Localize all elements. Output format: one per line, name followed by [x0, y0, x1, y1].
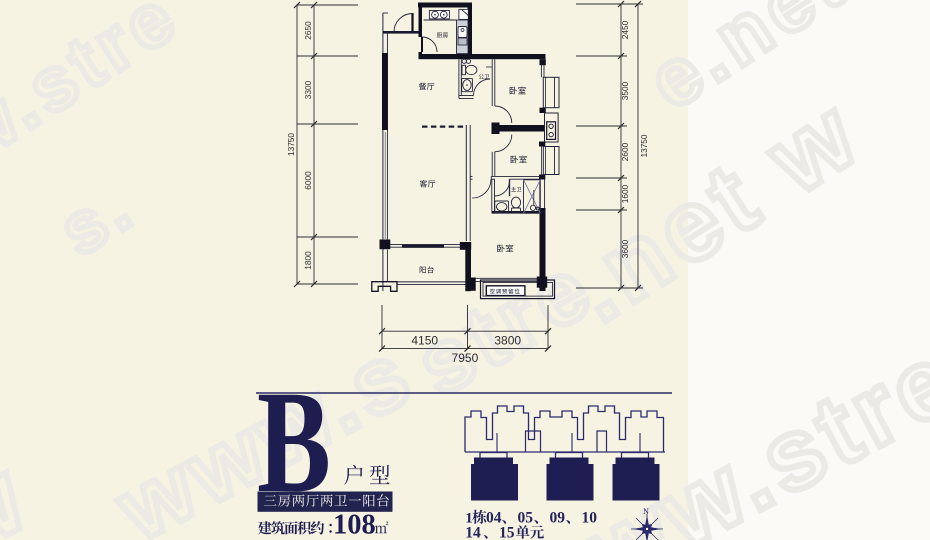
svg-text:2450: 2450 [620, 20, 630, 39]
svg-text:108: 108 [333, 510, 376, 540]
svg-text:2600: 2600 [620, 142, 630, 161]
svg-text:3300: 3300 [303, 80, 313, 99]
svg-text:1600: 1600 [620, 184, 630, 203]
svg-text:6000: 6000 [303, 171, 313, 190]
svg-text:1800: 1800 [303, 251, 313, 270]
svg-text:2650: 2650 [303, 21, 313, 40]
svg-text:15: 15 [499, 525, 515, 540]
svg-text:13750: 13750 [286, 133, 296, 156]
svg-text:7950: 7950 [452, 351, 479, 365]
svg-text:10: 10 [582, 510, 598, 527]
svg-text:3600: 3600 [620, 239, 630, 258]
svg-text:N: N [643, 507, 649, 516]
svg-text:14: 14 [465, 525, 481, 540]
svg-text:09: 09 [550, 510, 566, 527]
svg-text:05: 05 [518, 510, 534, 527]
svg-text:13750: 13750 [639, 134, 649, 157]
svg-text:3500: 3500 [620, 81, 630, 100]
svg-text:3800: 3800 [494, 334, 521, 348]
svg-text:4150: 4150 [411, 334, 438, 348]
